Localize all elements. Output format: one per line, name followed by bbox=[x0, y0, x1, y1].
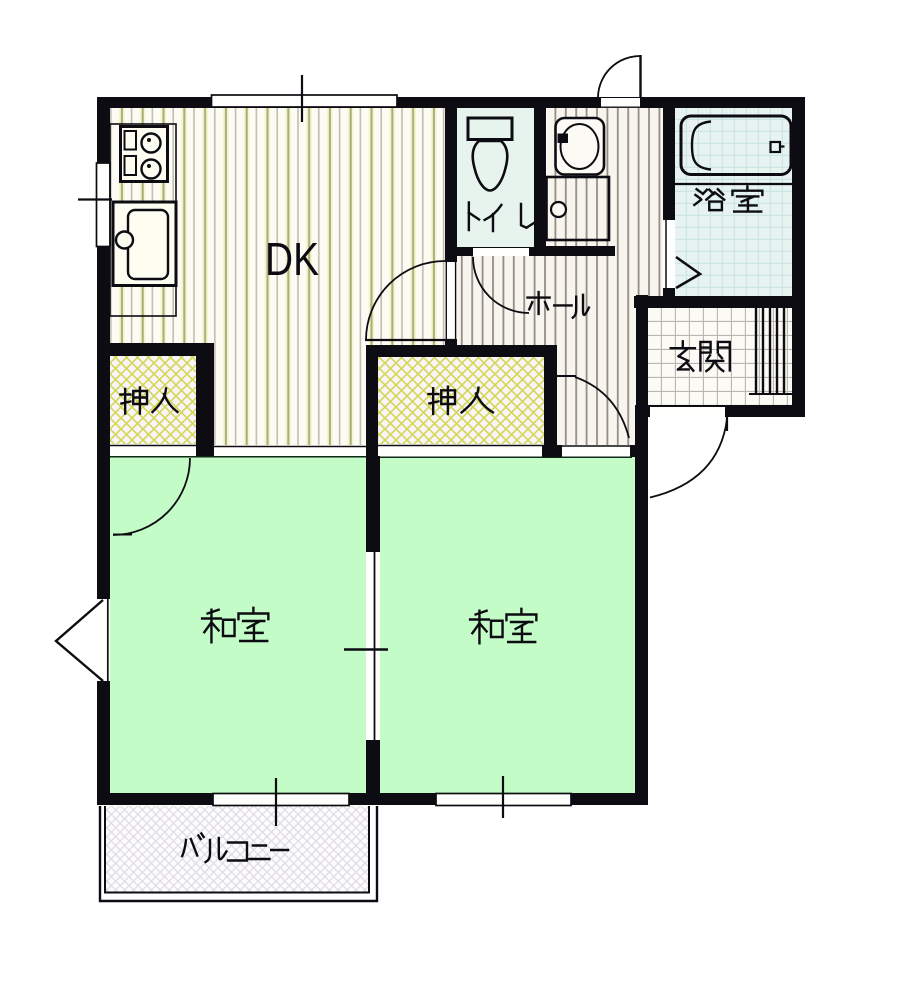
svg-text:DK: DK bbox=[265, 233, 319, 285]
